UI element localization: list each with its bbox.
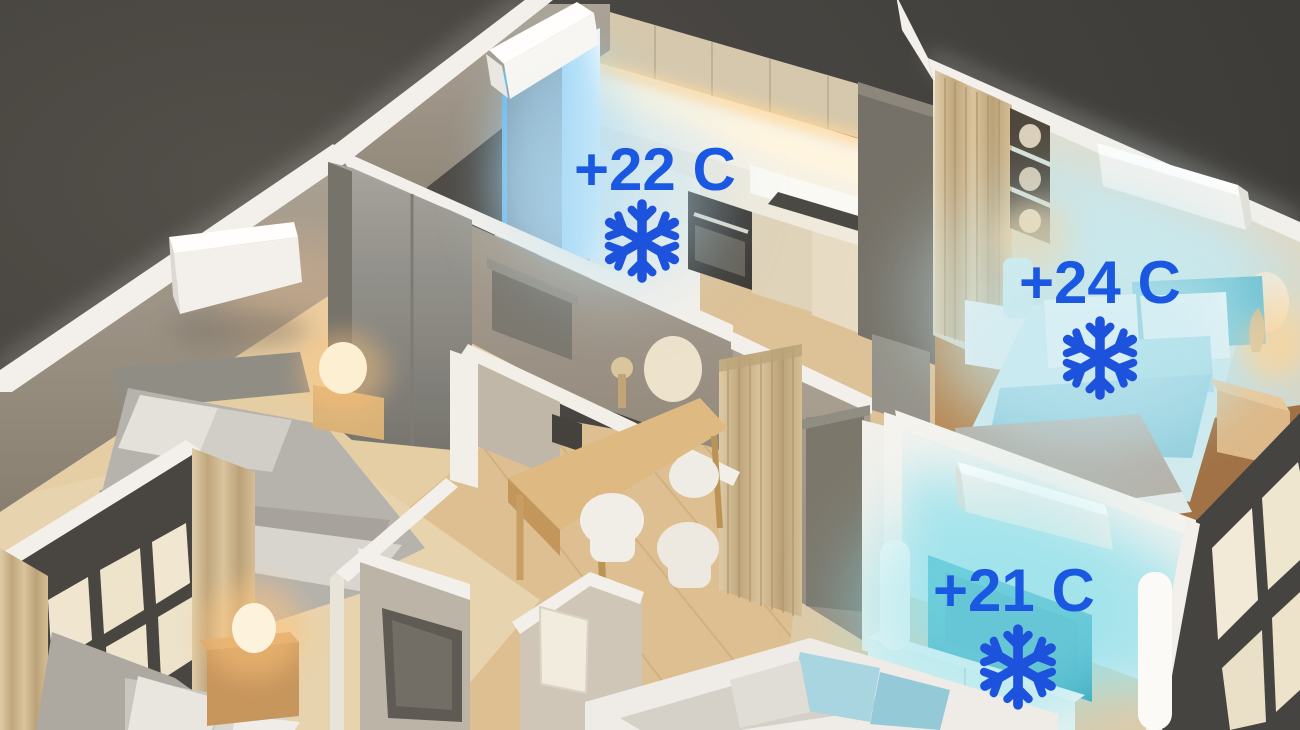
svg-text:+21 C: +21 C <box>933 557 1095 624</box>
svg-text:+24 C: +24 C <box>1019 249 1181 316</box>
svg-text:+22 C: +22 C <box>574 136 736 203</box>
